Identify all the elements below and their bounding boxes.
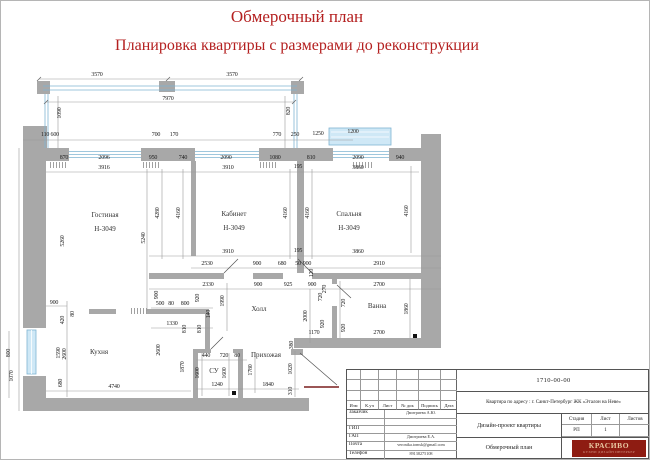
document-number: 1710-00-00 — [457, 370, 650, 392]
drawing-name: Обмерочный план — [457, 437, 562, 458]
stamp-row-empty — [347, 419, 457, 426]
stamp-row-label: Почта — [347, 442, 385, 450]
revision-header-row: Изм К.уч Лист № док Подпись Дата — [347, 401, 457, 410]
drawing-sheet: Обмерочный план Планировка квартиры с ра… — [0, 0, 650, 460]
stamp-row-gip: ГИП — [347, 426, 457, 434]
col-kuch: К.уч — [361, 401, 379, 410]
col-podpis: Подпись — [419, 401, 441, 410]
stamp-row-label — [347, 419, 385, 425]
stamp-row-value: Дмитриева Е.А. — [385, 434, 457, 441]
object-address: Квартира по адресу : г. Санкт-Петербург … — [457, 392, 650, 414]
stage-value: РП — [562, 425, 592, 437]
stamp-row-pochta: Почта veronika.tomsk@gmail.com — [347, 442, 457, 451]
col-ndok: № док — [397, 401, 419, 410]
krasivo-logo: КРАСИВО КУХНИ ДИЗАЙН ИНТЕРЬЕР — [572, 440, 646, 457]
door-pivot-dot — [232, 391, 236, 395]
sheet-value: 1 — [592, 425, 620, 437]
stamp-row-value — [385, 426, 457, 433]
stage-sheet-grid: Стадия Лист Листов РП 1 — [562, 414, 650, 437]
stage-label: Стадия — [562, 414, 592, 425]
stamp-row-value: 89138275108 — [385, 451, 457, 459]
title-block-left-grid: Изм К.уч Лист № док Подпись Дата Заказчи… — [347, 370, 457, 458]
logo-cell: КРАСИВО КУХНИ ДИЗАЙН ИНТЕРЬЕР — [562, 437, 650, 458]
sheets-label: Листов — [620, 414, 650, 425]
revision-grid — [347, 370, 457, 401]
stamp-row-telefon: Телефон 89138275108 — [347, 451, 457, 459]
stamp-row-label: Телефон — [347, 451, 385, 459]
stamp-row-label: Заказчик — [347, 410, 385, 418]
hatch-strips — [48, 162, 373, 314]
stamp-row-label: ГАП — [347, 434, 385, 441]
stamp-row-label: ГИП — [347, 426, 385, 433]
col-list: Лист — [379, 401, 397, 410]
logo-name: КРАСИВО — [572, 441, 646, 450]
stamp-row-value: veronika.tomsk@gmail.com — [385, 442, 457, 450]
title-block: Изм К.уч Лист № док Подпись Дата Заказчи… — [346, 369, 649, 459]
col-data: Дата — [441, 401, 457, 410]
stamp-row-value — [385, 419, 457, 425]
stamp-row-gap: ГАП Дмитриева Е.А. — [347, 434, 457, 442]
col-izm: Изм — [347, 401, 361, 410]
sheet-label: Лист — [592, 414, 620, 425]
stamp-row-zakazchik: Заказчик Дмитриева А.Ю. — [347, 410, 457, 419]
logo-tagline: КУХНИ ДИЗАЙН ИНТЕРЬЕР — [572, 450, 646, 454]
stamp-row-value: Дмитриева А.Ю. — [385, 410, 457, 418]
project-name: Дизайн-проект квартиры — [457, 414, 562, 437]
sheets-value — [620, 425, 650, 437]
door-pivot-dot — [413, 334, 417, 338]
